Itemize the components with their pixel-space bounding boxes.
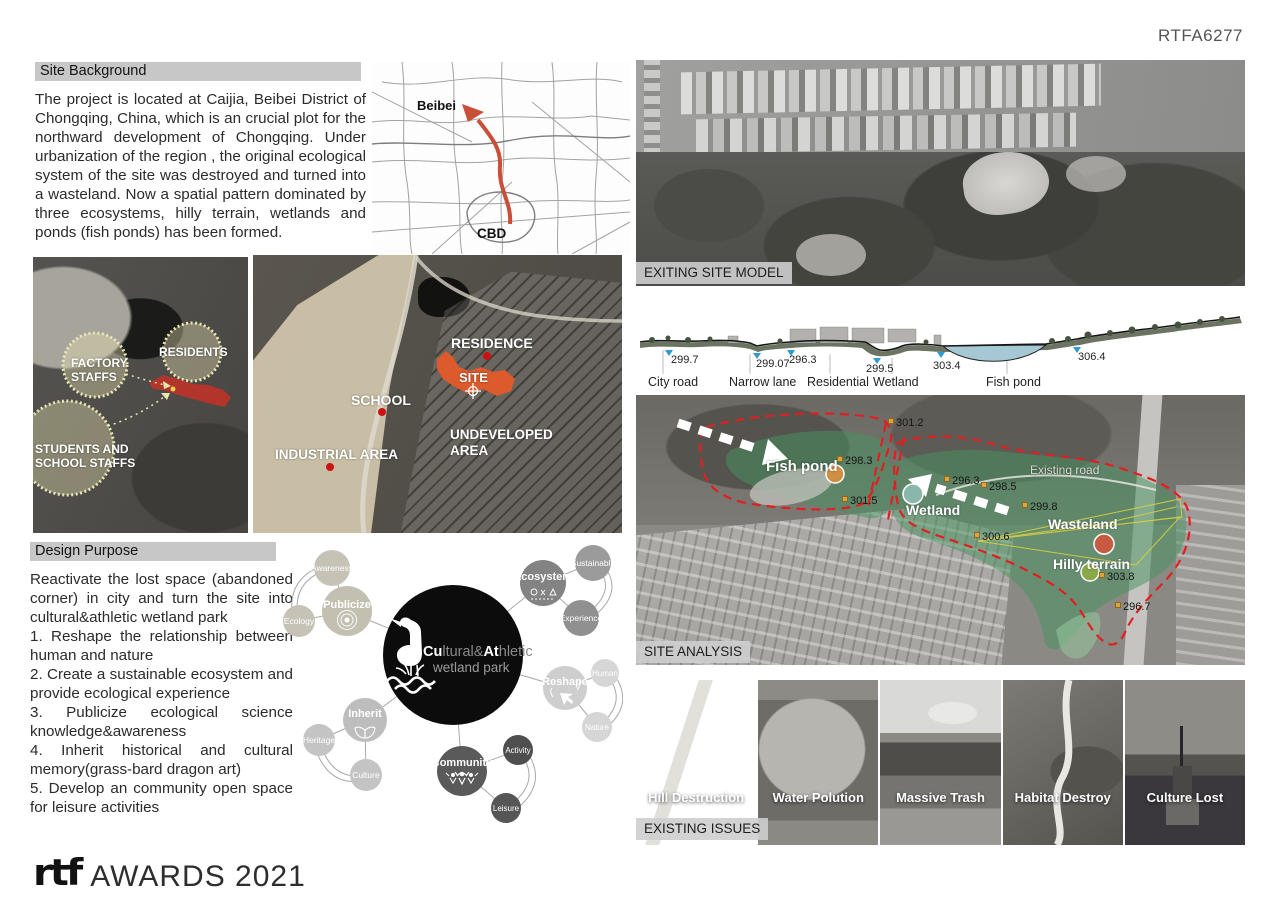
issue-photo-culture-lost: Culture Lost	[1125, 680, 1245, 845]
elev-301-2: 301.2	[888, 417, 924, 429]
center-title-line2: wetland park	[432, 660, 510, 675]
purpose-item-5: 5. Develop an community open space for l…	[30, 779, 293, 817]
ecology-label: Ecology	[284, 616, 315, 626]
fish-pond-water	[943, 345, 1046, 361]
issue-label-trash: Massive Trash	[880, 790, 1000, 805]
students-label: STUDENTS AND SCHOOL STAFFS	[35, 442, 135, 471]
stakeholder-overlay	[33, 257, 248, 533]
label-wetland: Wetland	[873, 375, 919, 389]
purpose-item-3: 3. Publicize ecological science knowledg…	[30, 703, 293, 741]
community-node	[437, 746, 487, 796]
footer-brand: rtf AWARDS 2021	[33, 850, 306, 896]
presentation-board: RTFA6277 Site Background The project is …	[0, 0, 1273, 900]
wasteland-label: Wasteland	[1048, 516, 1118, 533]
context-map: RESIDENCE SITE SCHOOL INDUSTRIAL AREA UN…	[253, 255, 622, 533]
label-narrow-lane: Narrow lane	[729, 375, 796, 389]
site-model-photo: EXITING SITE MODEL	[636, 60, 1245, 286]
issue-photo-habitat-destroy: Habitat Destroy	[1003, 680, 1123, 845]
nature-label: Nature	[585, 723, 610, 732]
label-residential: Residential	[807, 375, 869, 389]
wetland-node	[903, 484, 923, 504]
label-fish-pond: Fish pond	[986, 375, 1041, 389]
site-analysis-caption: SITE ANALYSIS	[636, 641, 750, 663]
factory-staffs-label: FACTORY STAFFS	[71, 356, 128, 385]
purpose-intro: Reactivate the lost space (abandoned cor…	[30, 570, 293, 627]
site-background-title: Site Background	[35, 62, 361, 81]
students-line1: STUDENTS AND	[35, 442, 129, 456]
elev-296-3: 296.3	[944, 475, 980, 487]
students-line2: SCHOOL STAFFS	[35, 456, 135, 470]
industrial-dot	[326, 463, 334, 471]
residence-dot	[483, 352, 491, 360]
center-seg2: ltural&	[442, 644, 483, 660]
rtf-logo: rtf	[33, 852, 80, 894]
issue-label-habitat: Habitat Destroy	[1003, 790, 1123, 805]
location-map: Beibei CBD	[372, 62, 630, 254]
residents-label: RESIDENTS	[159, 345, 228, 359]
analysis-overlay	[636, 395, 1245, 665]
elev-hill: 306.4	[1078, 351, 1106, 363]
concept-diagram-svg: Cultural&Athletic wetland park Publicize…	[283, 542, 623, 842]
sustainable-label: Sustainable	[571, 558, 616, 568]
section-buildings	[728, 327, 941, 345]
school-label: SCHOOL	[351, 392, 411, 409]
human-label: Human	[592, 669, 618, 678]
elev-301-5: 301.5	[842, 495, 878, 507]
reshape-node	[543, 666, 587, 710]
culture-pole	[1180, 726, 1183, 768]
elev-300-6: 300.6	[974, 531, 1010, 543]
school-dot	[378, 408, 386, 416]
design-purpose-title: Design Purpose	[30, 542, 276, 561]
secondary-road	[416, 257, 622, 321]
issue-photo-water-polution: Water Polution	[758, 680, 878, 845]
undeveloped-line1: UNDEVELOPED	[450, 427, 553, 442]
inherit-label: Inherit	[348, 708, 382, 720]
site-model-caption: EXITING SITE MODEL	[636, 262, 792, 284]
reference-code: RTFA6277	[1158, 26, 1243, 46]
undeveloped-label: UNDEVELOPED AREA	[450, 427, 553, 459]
model-clearing	[1066, 156, 1126, 192]
publicize-node	[322, 586, 372, 636]
ecosystem-label: Ecosystem	[514, 571, 572, 583]
center-seg3: At	[483, 644, 498, 660]
center-seg1: Cu	[423, 644, 442, 660]
label-city-road: City road	[648, 375, 698, 389]
elev-narrow-lane: 299.07	[756, 358, 790, 370]
site-background-text: The project is located at Caijia, Beibei…	[35, 90, 366, 242]
leisure-label: Leisure	[493, 804, 520, 813]
road-network-drawing: Beibei CBD	[372, 62, 630, 254]
publicize-label: Publicize	[323, 599, 371, 611]
awareness-label: Awareness	[311, 563, 353, 573]
model-pond-small	[796, 234, 866, 276]
center-seg4: hletic	[499, 644, 533, 660]
industrial-label: INDUSTRIAL AREA	[275, 447, 398, 463]
existing-issues-caption: EXISTING ISSUES	[636, 818, 768, 840]
reshape-label: Reshape	[542, 676, 588, 688]
site-analysis-map: Fish pond Wetland Wasteland Hilly terrai…	[636, 395, 1245, 665]
stakeholder-map: FACTORY STAFFS RESIDENTS STUDENTS AND SC…	[33, 257, 248, 533]
existing-road-label: Existing road	[1030, 463, 1099, 477]
cbd-label: CBD	[477, 226, 506, 241]
elev-303-8: 303.8	[1099, 571, 1135, 583]
issue-label-culture: Culture Lost	[1125, 790, 1245, 805]
activity-label: Activity	[505, 746, 530, 755]
culture-label: Culture	[352, 770, 380, 780]
elev-residential: 296.3	[789, 354, 817, 366]
site-marker-dot	[171, 387, 176, 392]
experience-label: Experience	[560, 613, 603, 623]
site-label: SITE	[459, 370, 488, 386]
heritage-label: Heritage	[303, 735, 335, 745]
undeveloped-line2: AREA	[450, 443, 488, 458]
context-overlay	[253, 255, 622, 533]
elev-fish-pond: 303.4	[933, 360, 961, 372]
fish-pond-label: Fish pond	[766, 458, 838, 476]
wetland-label: Wetland	[906, 502, 960, 519]
center-title-line1: Cultural&Athletic	[423, 644, 533, 660]
existing-issues-strip: Hill Destruction Water Polution Massive …	[636, 680, 1245, 845]
model-buildings-row1	[681, 64, 1101, 115]
issue-label-water: Water Polution	[758, 790, 878, 805]
issue-photo-massive-trash: Massive Trash	[880, 680, 1000, 845]
purpose-item-1: 1. Reshape the relationship between huma…	[30, 627, 293, 665]
model-buildings-row2	[696, 113, 1076, 154]
purpose-item-4: 4. Inherit historical and cultural memor…	[30, 741, 293, 779]
community-label: Community	[432, 757, 493, 769]
design-purpose-text: Reactivate the lost space (abandoned cor…	[30, 570, 293, 817]
elev-299-8: 299.8	[1022, 501, 1058, 513]
beibei-label: Beibei	[417, 98, 456, 113]
awards-text: AWARDS 2021	[90, 860, 306, 894]
factory-line2: STAFFS	[71, 370, 117, 384]
habitat-road-svg	[1003, 680, 1123, 845]
concept-diagram: Cultural&Athletic wetland park Publicize…	[283, 542, 623, 842]
elev-296-7: 296.7	[1115, 601, 1151, 613]
elev-wetland: 299.5	[866, 363, 894, 375]
elev-298-3: 298.3	[837, 455, 873, 467]
elev-298-5: 298.5	[981, 481, 1017, 493]
wasteland-node	[1094, 534, 1114, 554]
issue-label-hill: Hill Destruction	[636, 790, 756, 805]
residence-label: RESIDENCE	[451, 335, 533, 352]
section-profile: 299.7 299.07 296.3 299.5 303.4 306.4 Cit…	[640, 314, 1245, 390]
elev-city-road: 299.7	[671, 354, 699, 366]
purpose-item-2: 2. Create a sustainable ecosystem and pr…	[30, 665, 293, 703]
factory-line1: FACTORY	[71, 356, 128, 370]
